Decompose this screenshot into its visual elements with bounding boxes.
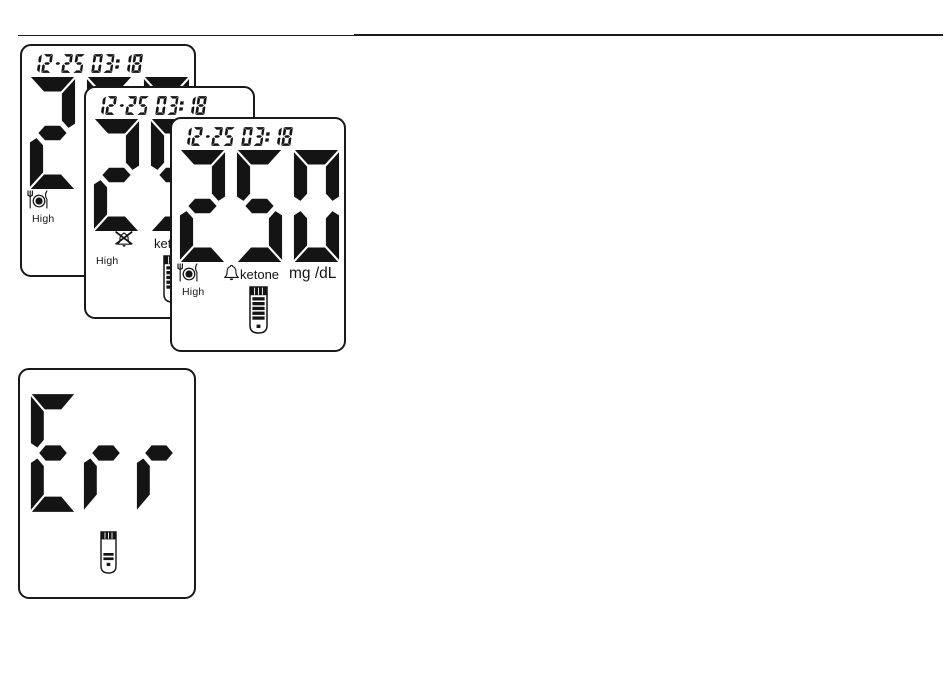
meal-icon <box>26 190 49 209</box>
seven-seg-digit <box>179 149 226 263</box>
seven-seg-digit <box>29 76 76 190</box>
high-label: High <box>96 255 118 267</box>
unit-label: mg /dL <box>289 265 336 283</box>
seven-seg-digit <box>93 118 140 232</box>
ketone-label: ketone <box>240 267 279 282</box>
test-strip-small-icon <box>100 531 117 574</box>
seven-seg-digit <box>83 393 129 513</box>
bell-icon <box>224 264 239 281</box>
seven-seg-digit <box>236 149 283 263</box>
bell-crossed-icon <box>115 231 133 248</box>
high-label: High <box>182 286 204 298</box>
lcd-screen-front: Highketonemg /dL <box>170 117 346 352</box>
header-rule <box>18 35 360 37</box>
meal-icon <box>176 263 199 282</box>
seven-seg-digit <box>30 393 76 513</box>
test-strip-icon <box>249 286 268 334</box>
lcd-screen-error <box>18 368 196 599</box>
header-rule-2 <box>354 34 943 36</box>
manual-page: HighHighketoneHighketonemg /dL <box>0 0 950 684</box>
seven-seg-digit <box>136 393 182 513</box>
high-label: High <box>32 213 54 225</box>
seven-seg-digit <box>293 149 340 263</box>
